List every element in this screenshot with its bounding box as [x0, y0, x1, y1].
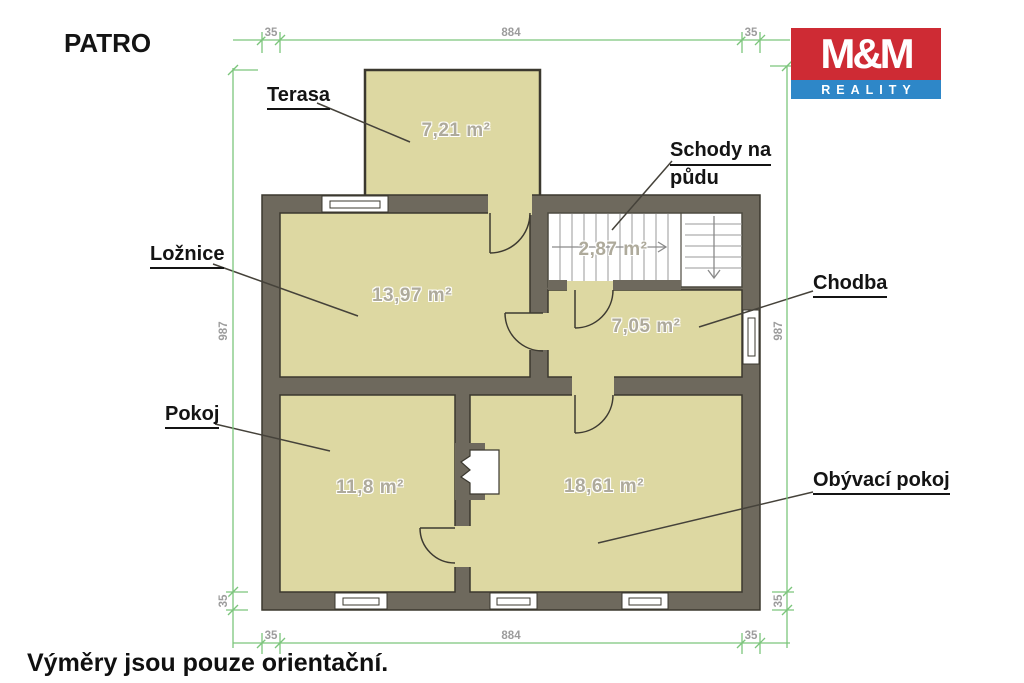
room-label-schody-line2: půdu: [670, 167, 719, 189]
wall-under-stairs: [548, 280, 567, 290]
dim-bottom-right: 35: [745, 630, 758, 642]
door-gap-pokoj: [454, 526, 471, 567]
room-label-loznice-text: Ložnice: [150, 243, 224, 269]
area-chodba: 7,05 m²: [612, 316, 681, 338]
area-terasa: 7,21 m²: [422, 120, 491, 142]
room-label-obyvaci: Obývací pokoj: [813, 469, 950, 495]
window-right-chodba: [748, 318, 755, 356]
door-gap-terrace: [488, 193, 532, 215]
floor-plan-drawing: 35 884 35 35 884 35 987 35 987 35: [0, 0, 1024, 683]
area-schody: 2,87 m²: [579, 239, 648, 261]
agency-logo: M&M REALITY: [791, 28, 941, 99]
room-label-chodba-text: Chodba: [813, 272, 887, 298]
dim-bottom-middle: 884: [501, 630, 521, 642]
dim-left-wall: 35: [218, 594, 230, 607]
page-title: PATRO: [64, 28, 151, 59]
window-top: [330, 201, 380, 208]
window-bottom-obyvaci-1: [497, 598, 530, 605]
room-label-chodba: Chodba: [813, 272, 887, 298]
room-label-obyvaci-text: Obývací pokoj: [813, 469, 950, 495]
window-bottom-obyvaci-2: [629, 598, 661, 605]
window-bottom-pokoj: [343, 598, 379, 605]
room-label-schody: Schody na půdu: [670, 138, 771, 191]
dim-right-wall: 35: [773, 594, 785, 607]
room-label-pokoj: Pokoj: [165, 403, 219, 429]
area-obyvaci: 18,61 m²: [564, 476, 644, 498]
door-gap-stairs: [567, 281, 613, 292]
room-label-loznice: Ložnice: [150, 243, 224, 269]
area-pokoj: 11,8 m²: [336, 477, 404, 499]
area-loznice: 13,97 m²: [372, 285, 452, 307]
door-gap-obyvaci: [572, 376, 614, 397]
dim-top-middle: 884: [501, 27, 521, 39]
logo-mm-mark: M&M: [791, 28, 941, 80]
dim-right-main: 987: [773, 321, 785, 340]
dim-top-left: 35: [265, 27, 278, 39]
floor-plan-page: 35 884 35 35 884 35 987 35 987 35 PATRO …: [0, 0, 1024, 683]
dim-bottom-left: 35: [265, 630, 278, 642]
disclaimer-note: Výměry jsou pouze orientační.: [27, 649, 388, 678]
wall-under-stairs: [613, 280, 681, 290]
logo-reality-bar: REALITY: [791, 80, 941, 99]
room-label-terasa: Terasa: [267, 84, 330, 110]
room-label-terasa-text: Terasa: [267, 84, 330, 110]
room-label-pokoj-text: Pokoj: [165, 403, 219, 429]
room-label-schody-line1: Schody na: [670, 138, 771, 166]
dim-top-right: 35: [745, 27, 758, 39]
door-gap-loznice: [529, 313, 549, 350]
dim-left-main: 987: [218, 321, 230, 340]
